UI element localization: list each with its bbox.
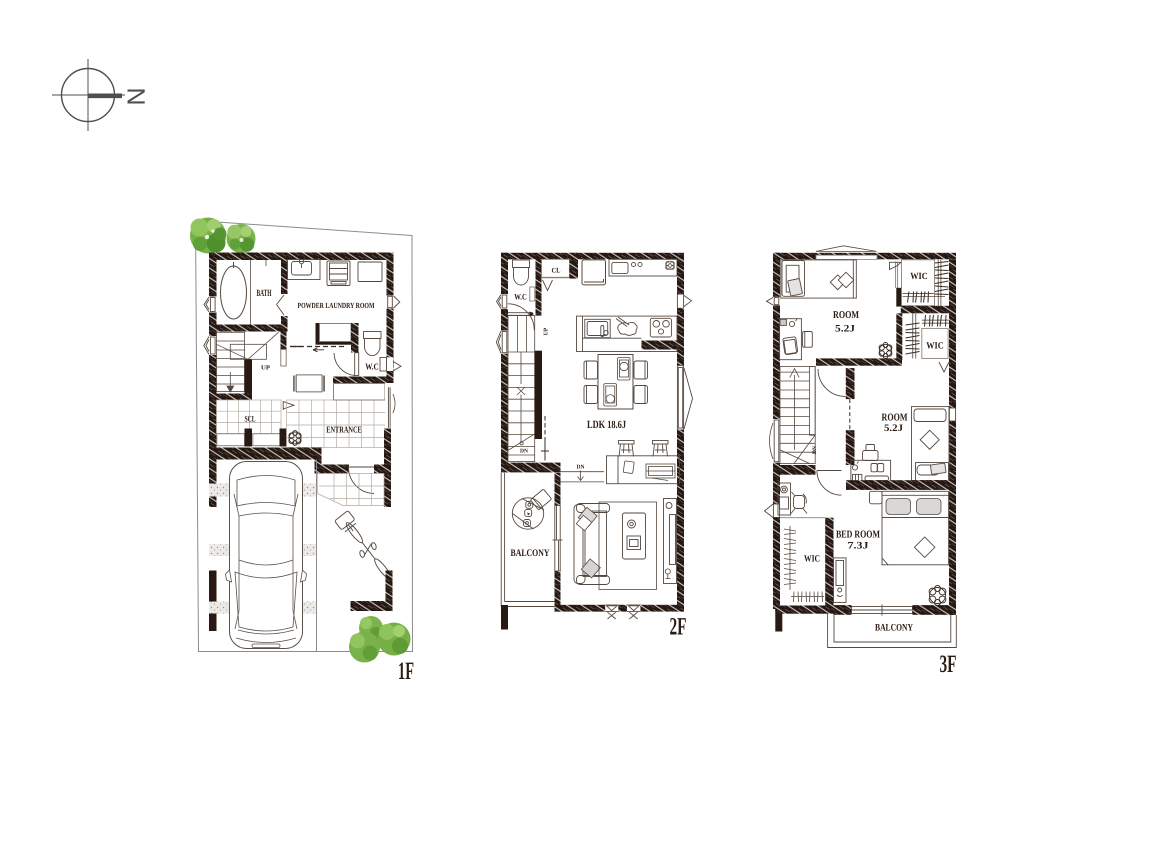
svg-text:3F: 3F xyxy=(940,651,957,678)
svg-text:7.3J: 7.3J xyxy=(848,541,869,552)
svg-text:BALCONY: BALCONY xyxy=(511,548,551,559)
svg-text:DN: DN xyxy=(577,465,586,471)
svg-text:LDK 18.6J: LDK 18.6J xyxy=(587,419,626,431)
svg-text:BED ROOM: BED ROOM xyxy=(836,530,880,541)
svg-text:BATH: BATH xyxy=(257,289,272,299)
svg-text:BALCONY: BALCONY xyxy=(875,623,914,634)
svg-text:ROOM: ROOM xyxy=(882,413,908,424)
svg-text:ROOM: ROOM xyxy=(833,310,859,321)
svg-text:5.2J: 5.2J xyxy=(835,324,855,335)
svg-text:5.2J: 5.2J xyxy=(884,423,903,434)
svg-text:ENTRANCE: ENTRANCE xyxy=(326,425,362,435)
svg-text:UP: UP xyxy=(544,327,550,335)
svg-text:SCL: SCL xyxy=(245,414,256,424)
svg-text:POWDER LAUNDRY ROOM: POWDER LAUNDRY ROOM xyxy=(298,301,375,310)
svg-text:UP: UP xyxy=(261,364,270,371)
svg-text:DN: DN xyxy=(812,446,818,454)
svg-text:WIC: WIC xyxy=(926,342,944,352)
svg-text:N: N xyxy=(122,88,150,106)
svg-text:W.C: W.C xyxy=(514,292,527,302)
svg-text:2F: 2F xyxy=(670,614,687,641)
svg-text:W.C: W.C xyxy=(365,362,379,372)
svg-text:WIC: WIC xyxy=(804,555,820,565)
svg-text:DN: DN xyxy=(520,449,529,455)
svg-text:CL: CL xyxy=(552,267,561,275)
svg-text:WIC: WIC xyxy=(910,272,928,282)
svg-text:1F: 1F xyxy=(398,658,414,685)
